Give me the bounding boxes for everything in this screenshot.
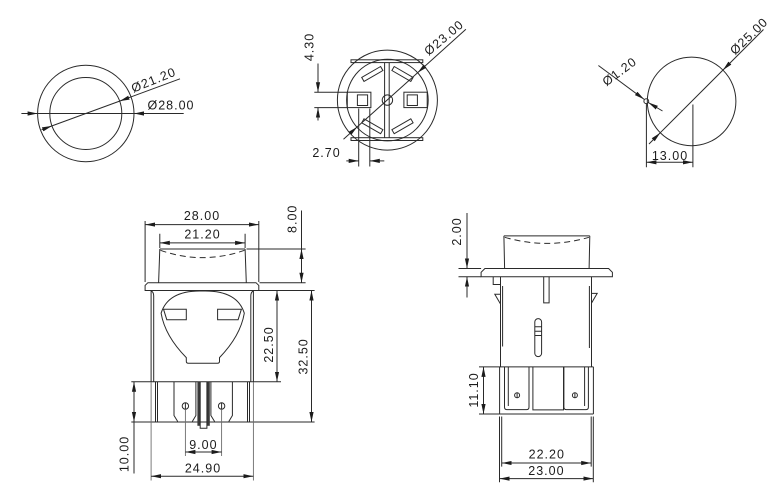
svg-text:2.00: 2.00: [450, 217, 464, 245]
svg-text:11.10: 11.10: [467, 372, 481, 407]
svg-text:8.00: 8.00: [286, 205, 300, 233]
svg-text:4.30: 4.30: [302, 33, 316, 61]
svg-text:Ø28.00: Ø28.00: [147, 99, 194, 113]
svg-text:10.00: 10.00: [117, 436, 131, 472]
svg-text:13.00: 13.00: [652, 149, 688, 163]
svg-text:22.50: 22.50: [262, 326, 276, 362]
svg-text:28.00: 28.00: [184, 209, 220, 223]
svg-text:9.00: 9.00: [189, 438, 217, 452]
svg-text:24.90: 24.90: [185, 461, 221, 475]
svg-text:32.50: 32.50: [296, 338, 310, 374]
svg-text:2.70: 2.70: [312, 146, 340, 160]
svg-text:22.20: 22.20: [529, 448, 565, 462]
svg-text:21.20: 21.20: [184, 227, 220, 241]
svg-text:23.00: 23.00: [528, 464, 564, 478]
